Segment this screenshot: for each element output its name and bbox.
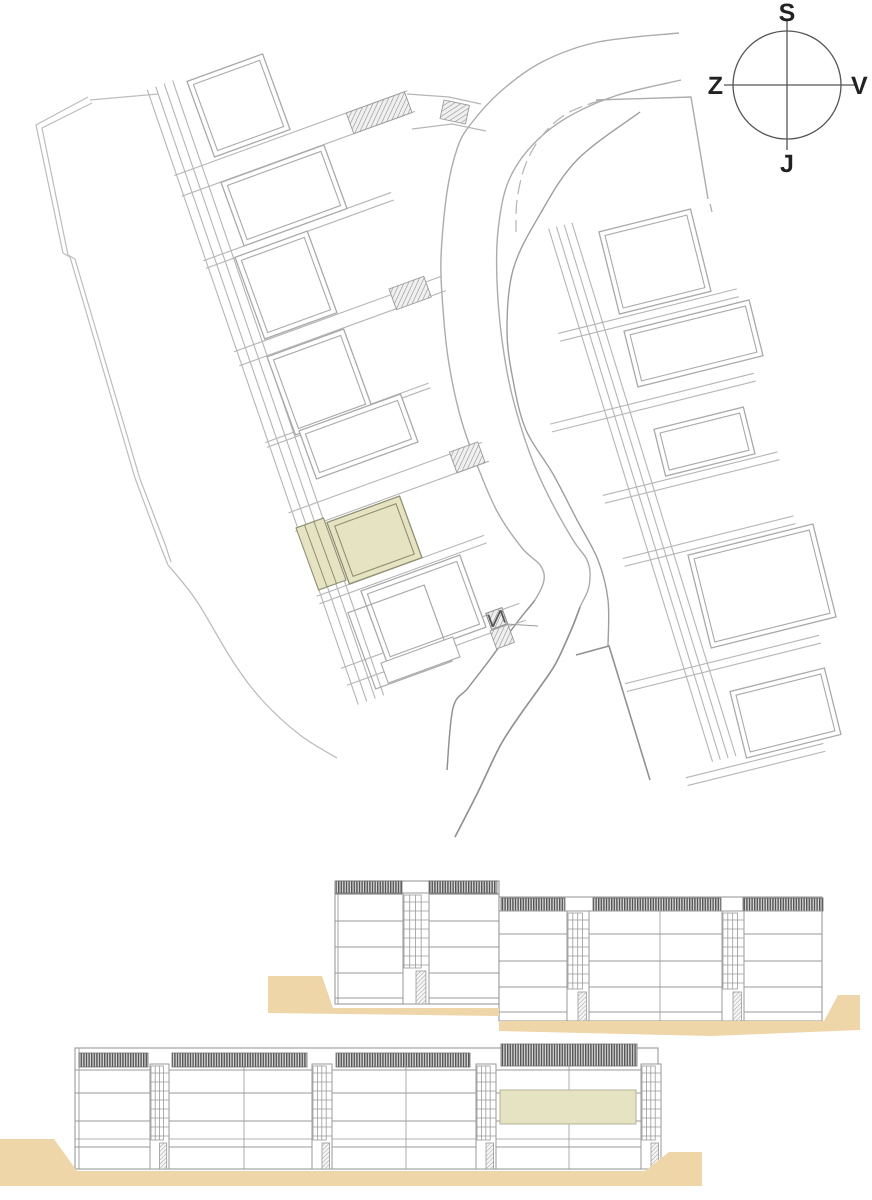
svg-text:V: V bbox=[851, 72, 868, 100]
svg-text:Z: Z bbox=[708, 72, 723, 100]
svg-text:S: S bbox=[779, 0, 796, 27]
svg-text:J: J bbox=[780, 150, 794, 178]
